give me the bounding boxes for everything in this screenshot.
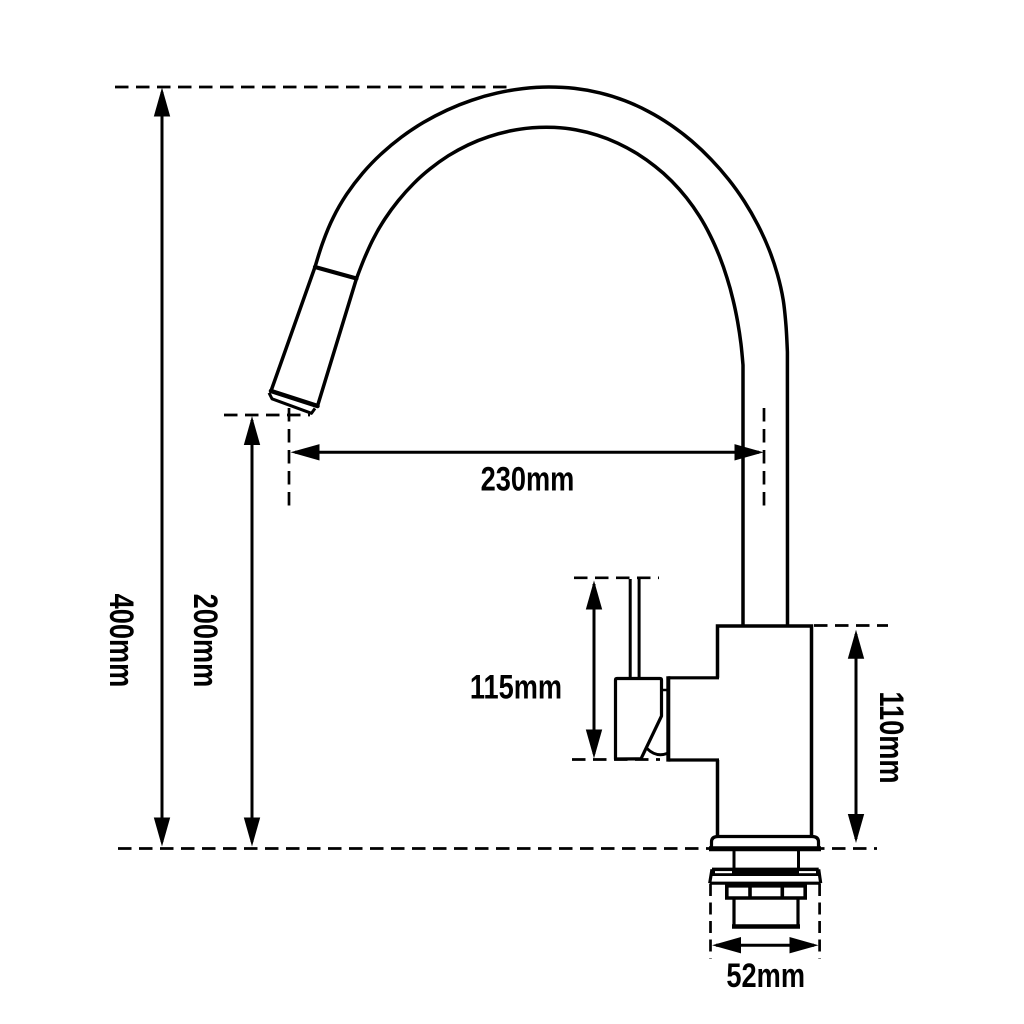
svg-text:230mm: 230mm bbox=[481, 460, 575, 499]
svg-text:115mm: 115mm bbox=[470, 668, 562, 707]
svg-text:200mm: 200mm bbox=[186, 594, 225, 688]
svg-text:52mm: 52mm bbox=[726, 956, 805, 995]
svg-text:110mm: 110mm bbox=[872, 691, 911, 783]
svg-text:400mm: 400mm bbox=[102, 594, 141, 688]
